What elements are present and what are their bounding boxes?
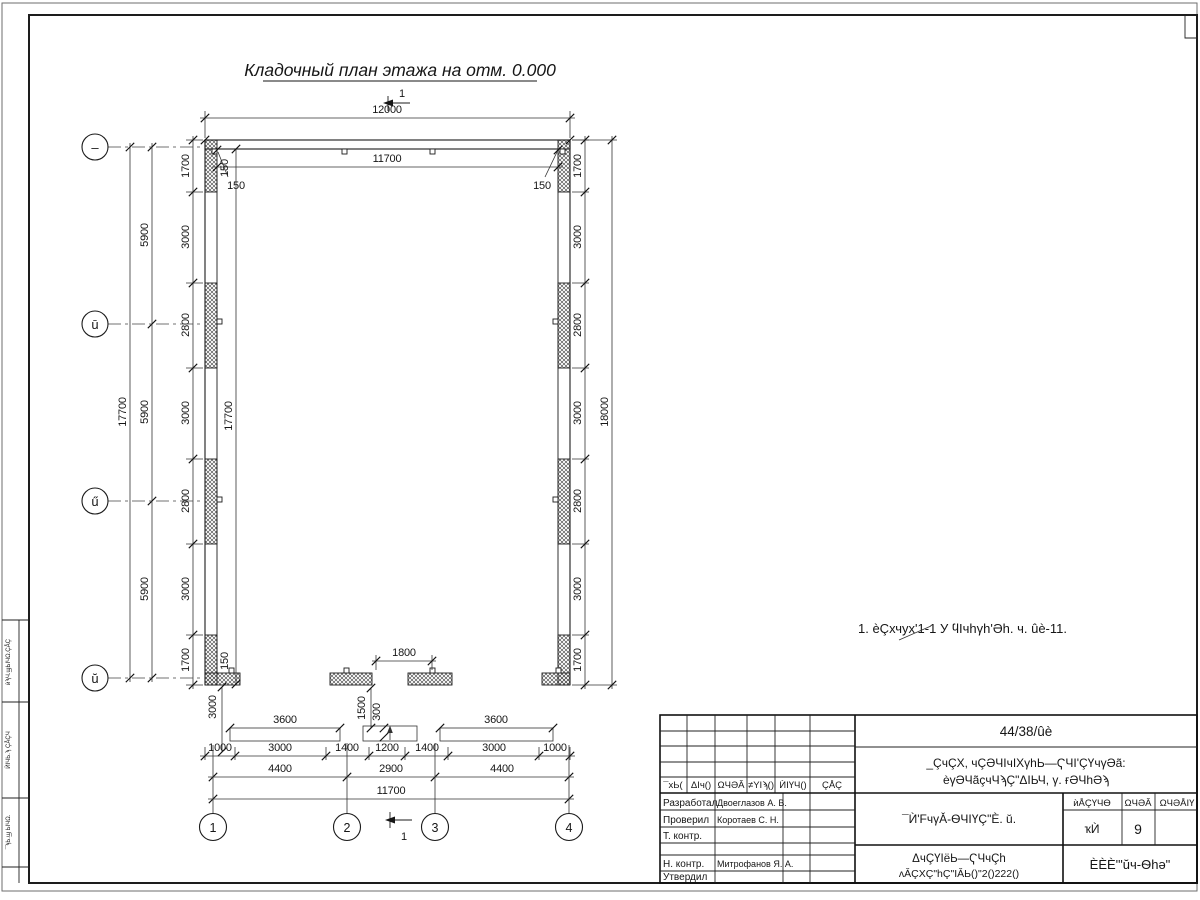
tb-role: Проверил bbox=[663, 815, 709, 826]
tb-role: Н. контр. bbox=[663, 859, 704, 870]
tb-doc-number: 44/38/ûè bbox=[1000, 724, 1053, 739]
dim-right-seg: 3000 bbox=[572, 577, 584, 601]
axis-label: – bbox=[91, 140, 99, 155]
tb-header-cell: ΔIч() bbox=[691, 780, 711, 791]
section-label: 1 bbox=[399, 88, 405, 100]
side-strip-label: ѝϡЧ.ϣЬIЧΩ.ÇÅÇ bbox=[5, 638, 12, 685]
dimensions-bottom: 1800 150 3000 1500 300 3600 3600 1000 30… bbox=[200, 647, 575, 803]
axis-label: ű bbox=[91, 494, 98, 509]
side-strip-label: ЍIЧЬ.ϡ ÇÅÇЧ bbox=[5, 731, 12, 768]
dim-bot-seg: 3000 bbox=[482, 742, 506, 754]
dim-offset-tr: 150 bbox=[533, 180, 551, 192]
side-strip: ѝϡЧ.ϣЬIЧΩ.ÇÅÇ ЍIЧЬ.ϡ ÇÅÇЧ ¯ϡЬ.ϣ ЬIЧΩ. bbox=[2, 620, 29, 883]
tb-role: Разработал bbox=[663, 797, 718, 809]
dim-porch-left: 3600 bbox=[273, 714, 297, 726]
dim-bot-seg: 1200 bbox=[375, 742, 399, 754]
dim-left-seg: 1700 bbox=[180, 154, 192, 178]
note: 1. èÇхчух'1-1 У ϥIчhγh'Əh. ч. ûè-11. bbox=[858, 621, 1067, 640]
dim-v1500: 1500 bbox=[356, 696, 368, 720]
dim-porch-right: 3600 bbox=[484, 714, 508, 726]
tb-name: Двоеглазов А. В. bbox=[717, 798, 787, 808]
tb-role: Утвердил bbox=[663, 872, 707, 883]
axis-label: ū bbox=[91, 317, 98, 332]
dim-right-seg: 3000 bbox=[572, 401, 584, 425]
porch-outlines bbox=[230, 726, 553, 742]
dim-right-seg: 3000 bbox=[572, 225, 584, 249]
axis-label: 2 bbox=[344, 821, 351, 835]
dim-offset-bl: 150 bbox=[219, 652, 231, 670]
dimensions-left: 1700 3000 2800 3000 2800 3000 1700 5900 … bbox=[117, 136, 240, 689]
dim-right-seg: 2800 bbox=[572, 313, 584, 337]
drawing-sheet: ѝϡЧ.ϣЬIЧΩ.ÇÅÇ ЍIЧЬ.ϡ ÇÅÇЧ ¯ϡЬ.ϣ ЬIЧΩ. Кл… bbox=[0, 0, 1200, 900]
tb-org-line1: ΔчÇҮIёЬ—ҀЧчÇh bbox=[912, 853, 1006, 865]
dim-bot-seg: 1000 bbox=[543, 742, 567, 754]
pilaster-marks bbox=[212, 149, 565, 673]
dim-top-overall: 12000 bbox=[372, 104, 402, 116]
side-strip-label: ¯ϡЬ.ϣ ЬIЧΩ. bbox=[5, 814, 12, 850]
tb-name: Коротаев С. Н. bbox=[717, 815, 779, 825]
axis-label: 4 bbox=[566, 821, 573, 835]
title-block: ¯хЬ( ΔIч() ΩЧӘĂ ≠YIϡ() ЍIҮЧ() ÇÅÇ Разраб… bbox=[660, 715, 1197, 883]
axis-label: 3 bbox=[432, 821, 439, 835]
tb-name: Митрофанов Я. А. bbox=[717, 859, 793, 869]
tb-stage-header: ѝÅÇҮЧѲ bbox=[1073, 798, 1111, 809]
tb-header-cell: ΩЧӘĂ bbox=[718, 780, 746, 791]
drawing-canvas: ѝϡЧ.ϣЬIЧΩ.ÇÅÇ ЍIЧЬ.ϡ ÇÅÇЧ ¯ϡЬ.ϣ ЬIЧΩ. Кл… bbox=[0, 0, 1200, 900]
dim-top-inner: 11700 bbox=[373, 153, 402, 165]
dim-bot-opening: 1800 bbox=[392, 647, 416, 659]
dimensions-top: 12000 11700 150 150 150 bbox=[200, 104, 575, 192]
dim-bot-axis: 2900 bbox=[379, 763, 403, 775]
dimensions-right: 1700 3000 2800 3000 2800 3000 1700 18000 bbox=[572, 136, 617, 689]
dim-left-seg: 3000 bbox=[180, 401, 192, 425]
section-mark-bottom: 1 bbox=[385, 812, 412, 843]
dim-offset-tl-v: 150 bbox=[219, 159, 231, 177]
tb-header-cell: ¯хЬ( bbox=[662, 780, 683, 791]
dim-bot-axis: 4400 bbox=[490, 763, 514, 775]
dim-right-seg: 1700 bbox=[572, 648, 584, 672]
axis-label: ŭ bbox=[91, 671, 98, 686]
tb-role: Т. контр. bbox=[663, 831, 702, 842]
section-label: 1 bbox=[401, 831, 407, 843]
dim-right-seg: 1700 bbox=[572, 154, 584, 178]
tb-header-cell: ЍIҮЧ() bbox=[779, 780, 806, 791]
dim-left-seg: 3000 bbox=[180, 225, 192, 249]
dim-bot-overall: 11700 bbox=[377, 785, 406, 797]
dim-bot-seg: 1000 bbox=[208, 742, 232, 754]
dim-right-overall: 18000 bbox=[599, 397, 611, 427]
dim-left-seg: 1700 bbox=[180, 648, 192, 672]
dim-left-overall: 17700 bbox=[117, 397, 129, 427]
tb-project-line1: _ÇчÇХ, чÇӘЧIчIХγhЬ—ҀЧI'ÇҮчγӘã: bbox=[925, 756, 1125, 770]
dim-left-axis: 5900 bbox=[139, 400, 151, 424]
dim-v3000: 3000 bbox=[207, 695, 219, 719]
dim-v300: 300 bbox=[371, 703, 383, 721]
entry-arrow-icon bbox=[387, 726, 393, 734]
tb-project-line2: èγӘЧãçчЧϡÇ"ΔIЬЧ, γ. ғӘЧhӘϡ bbox=[943, 773, 1109, 787]
plan-title: Кладочный план этажа на отм. 0.000 bbox=[244, 60, 556, 80]
tb-header-cell: ≠YIϡ() bbox=[748, 780, 774, 791]
tb-drawing-title: ¯Ѝ'FчγǍ-ѲЧIҮÇ"È. ŭ. bbox=[901, 811, 1016, 826]
tb-header-cell: ÇÅÇ bbox=[822, 780, 842, 791]
note-text: 1. èÇхчух'1-1 У ϥIчhγh'Əh. ч. ûè-11. bbox=[858, 621, 1067, 636]
tb-company: ÈÈÈ'"ŭч-Ѳhə" bbox=[1090, 857, 1171, 872]
tb-org-line2: ʌǍÇХÇ"hÇ"IǍЬ()"2()222() bbox=[899, 867, 1019, 880]
tb-stage-value: 9 bbox=[1134, 821, 1142, 837]
dim-left-seg: 3000 bbox=[180, 577, 192, 601]
dim-left-seg: 2800 bbox=[180, 313, 192, 337]
dim-left-axis: 5900 bbox=[139, 223, 151, 247]
axis-label: 1 bbox=[210, 821, 217, 835]
tb-stage-header: ΩЧӘÅIҮ bbox=[1160, 798, 1196, 809]
tb-stage-header: ΩЧӘĂ bbox=[1125, 798, 1153, 809]
dim-left-inner-overall: 17700 bbox=[223, 401, 235, 431]
dim-bot-axis: 4400 bbox=[268, 763, 292, 775]
dim-left-axis: 5900 bbox=[139, 577, 151, 601]
corner-doc-box bbox=[1185, 15, 1197, 38]
floor-plan-walls bbox=[205, 140, 570, 685]
dim-bot-seg: 3000 bbox=[268, 742, 292, 754]
dim-right-seg: 2800 bbox=[572, 489, 584, 513]
tb-stage-value: ҡЍ bbox=[1084, 821, 1099, 836]
